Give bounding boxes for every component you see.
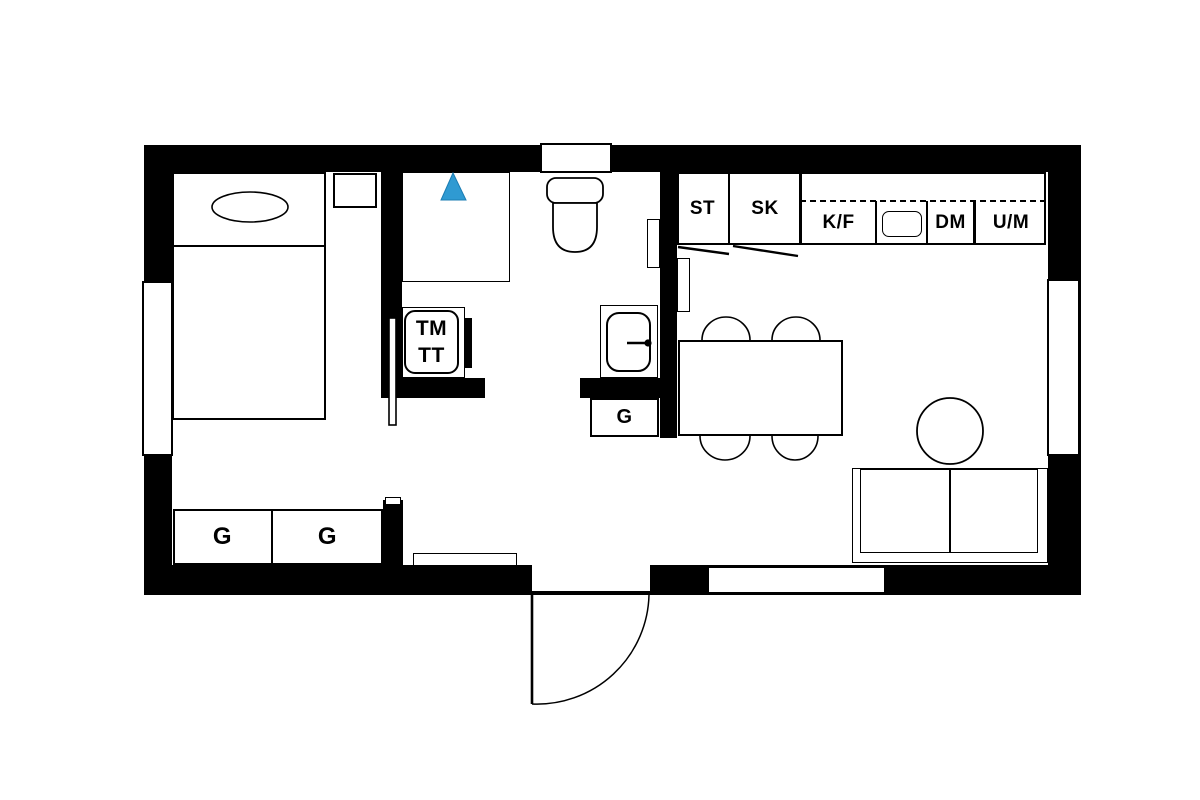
chair-bottom-2 [772,436,818,460]
window-left [142,281,173,456]
kitchen-unit-dm-label: DM [928,201,973,245]
kitchen-unit-sk-label: SK [730,172,800,245]
entrance-door-swing-arc [532,595,649,704]
toilet-tank [547,178,603,203]
window-bottom [707,566,886,594]
side-table [917,398,983,464]
dining-table [678,340,843,436]
washbasin [606,312,651,372]
wall-bedroom-bathroom [381,172,402,398]
hall-mat [413,553,517,566]
kitchen-unit-kf-label: K/F [802,201,875,245]
wall-closet-stub [383,500,403,565]
floor-plan: G G TM TT G ST SK K/F DM U/M [0,0,1200,800]
wall-bathroom-bottom-right [580,378,660,398]
nightstand [333,173,377,208]
entrance-door-opening [532,565,650,593]
washing-machine-label: TM TT [404,310,459,374]
washer-label-line2: TT [418,342,445,369]
washer-label-line1: TM [416,315,447,342]
bed [172,172,326,420]
hall-closet-label: G [590,398,659,437]
toilet-bowl [553,203,597,252]
wardrobe-g1-label: G [173,509,272,565]
hob [882,211,922,237]
cabinet-door-swing-2 [733,246,798,256]
wall-niche-living-side [677,258,690,312]
kitchen-unit-st-label: ST [677,172,728,245]
wall-bathroom-bottom-left [402,378,485,398]
counter-divider-kf-hob [875,201,877,245]
wall-washer-side-segment [465,318,472,368]
chair-top-1 [702,317,750,340]
chair-top-2 [772,317,820,340]
sofa-cushion-divider [949,469,951,553]
wall-hall-living [660,172,677,438]
cabinet-door-swing-1 [678,247,729,254]
wall-top [144,145,1081,172]
wardrobe-g2-label: G [272,509,383,565]
window-top [540,143,612,173]
bed-headboard-line [172,245,326,247]
wall-niche-hall-side [647,219,660,268]
kitchen-unit-um-label: U/M [976,201,1046,245]
shower [402,172,510,282]
chair-bottom-1 [700,436,750,460]
window-right [1047,279,1080,456]
closet-stub-cap [385,497,401,505]
